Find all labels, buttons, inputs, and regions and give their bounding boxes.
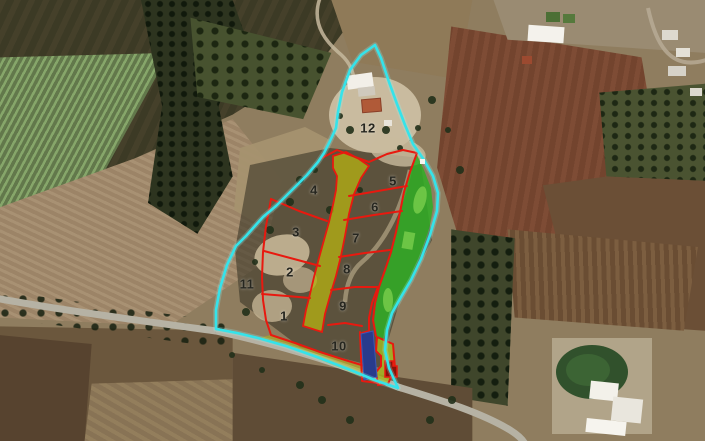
road-main-left [0,298,216,331]
road-track-top [317,0,354,78]
road-main-right [398,387,525,441]
buildings-top-right [522,12,702,96]
buildings-facility-bottom [552,338,652,436]
white-marker [420,159,425,164]
satellite-map: 123456789101112 [0,0,705,441]
cadastral-overlay [0,0,705,441]
